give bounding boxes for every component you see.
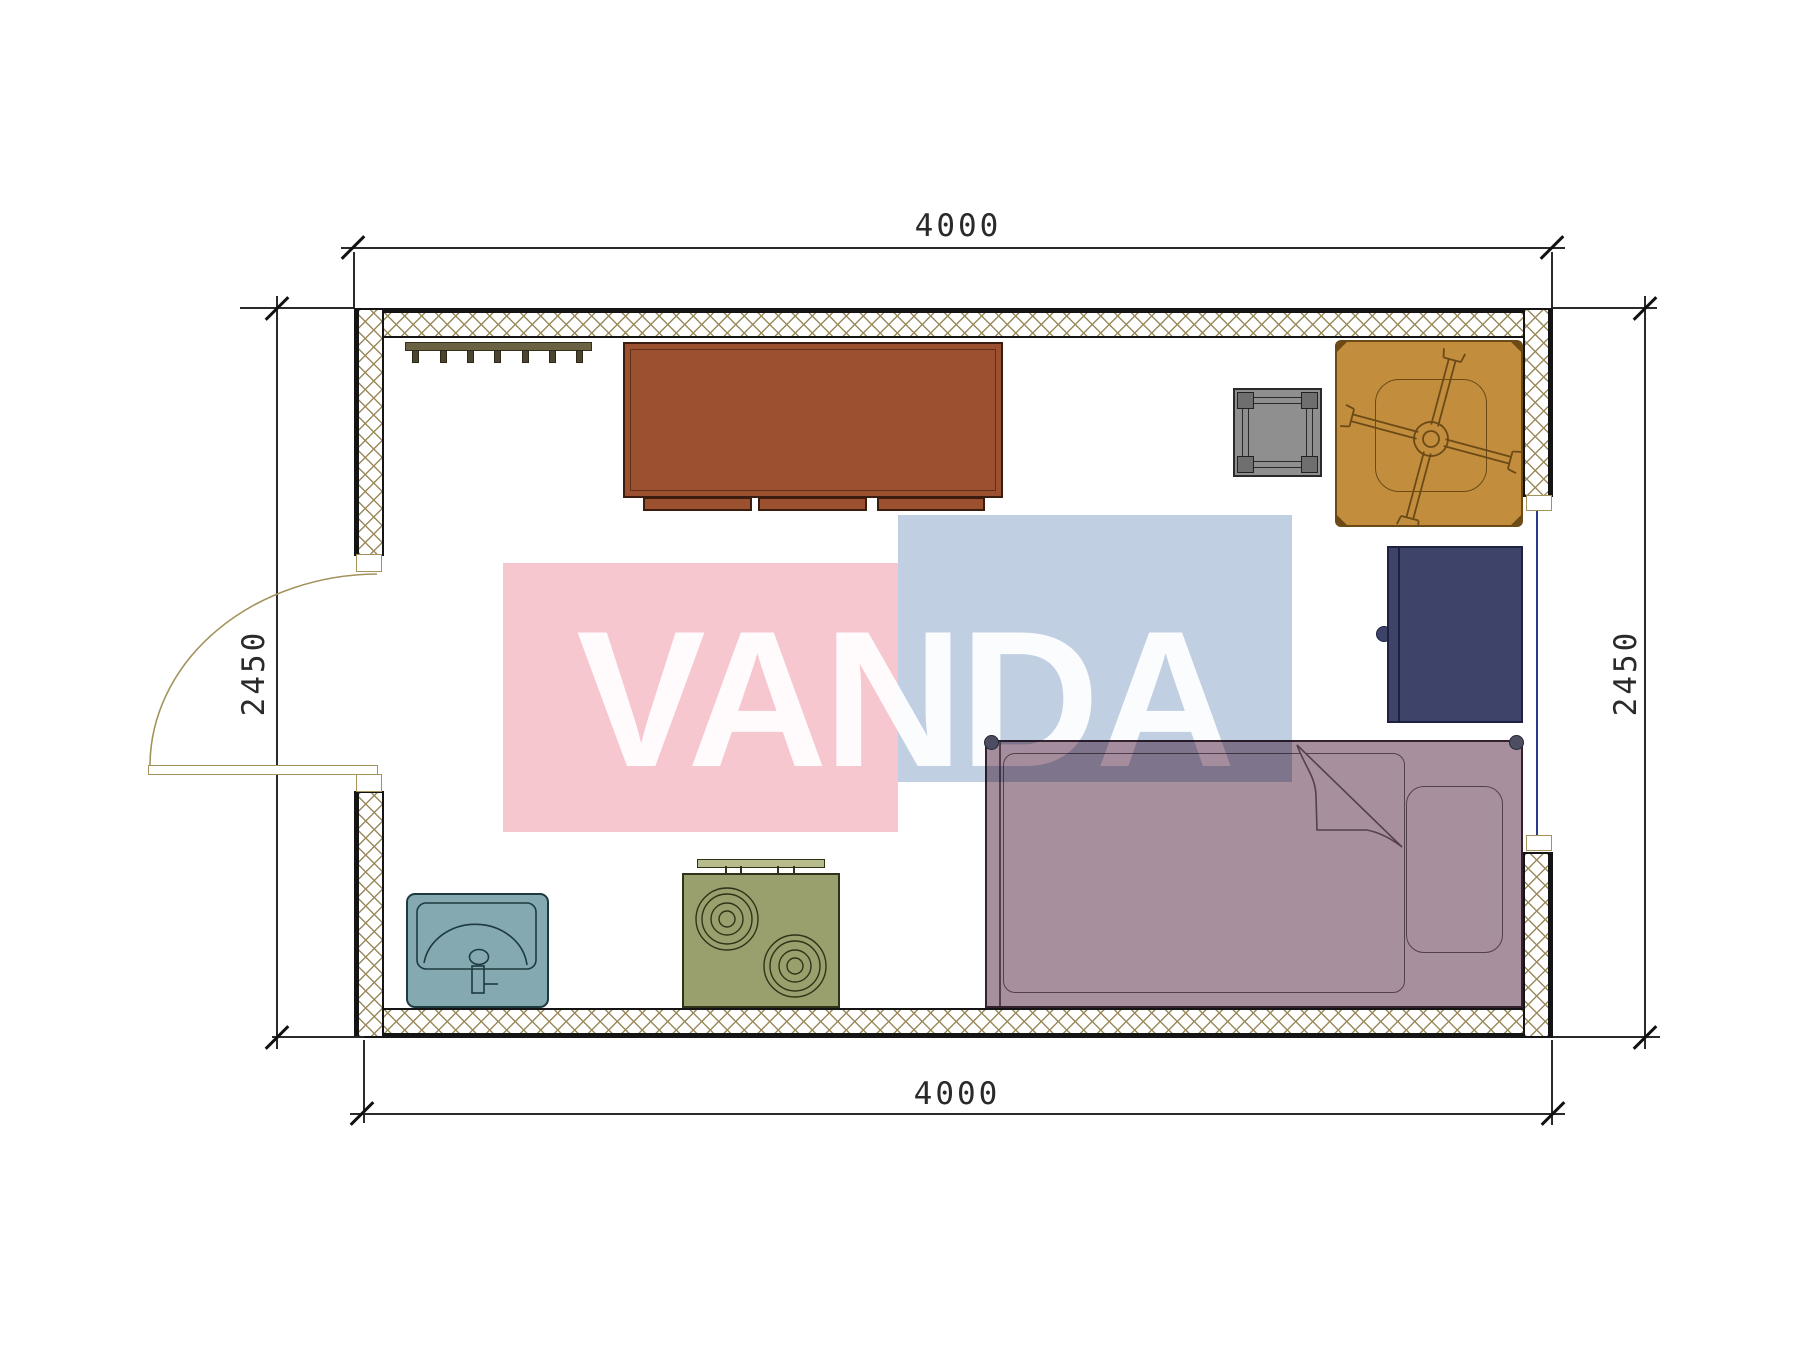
dim-label-right: 2450	[1608, 573, 1644, 773]
desk-drawer-icon	[758, 497, 867, 511]
wall-left-lower	[354, 791, 384, 1038]
wall-top	[354, 308, 1553, 338]
wall-right-upper	[1523, 308, 1553, 497]
cabinet-door-line	[1398, 548, 1400, 721]
floor-plan: VANDA 4000 4000 2450 2450	[0, 0, 1800, 1350]
door-jamb-bottom	[356, 774, 382, 792]
bed-post-icon	[984, 735, 999, 750]
stove-backsplash	[697, 859, 825, 868]
dim-label-left: 2450	[236, 573, 272, 773]
chair-base-cross	[1337, 342, 1523, 527]
dim-line-right	[1644, 296, 1646, 1049]
witness-top-left	[353, 252, 355, 308]
wall-left-upper	[354, 308, 384, 556]
window-glass-line	[1536, 511, 1538, 835]
door-jamb-top	[356, 554, 382, 572]
stool-icon	[1233, 388, 1322, 477]
desk-drawer-icon	[643, 497, 752, 511]
stove-icon	[682, 873, 840, 1008]
witness-left-top	[240, 307, 354, 309]
coat-hook-icon	[412, 350, 419, 363]
cabinet-icon	[1387, 546, 1523, 723]
pillow-icon	[1406, 786, 1503, 953]
witness-left-bottom	[272, 1036, 364, 1038]
wall-right-lower	[1523, 852, 1553, 1038]
dim-label-top: 4000	[858, 208, 1058, 244]
coat-hook-icon	[522, 350, 529, 363]
coat-hook-icon	[549, 350, 556, 363]
coat-hook-icon	[494, 350, 501, 363]
dim-line-bottom	[350, 1113, 1565, 1115]
bed-post-icon	[1509, 735, 1524, 750]
stool-leg	[1237, 456, 1254, 473]
stool-leg	[1301, 392, 1318, 409]
desk-icon	[623, 342, 1003, 498]
stool-leg	[1301, 456, 1318, 473]
witness-top-right	[1551, 252, 1553, 308]
wall-bottom	[354, 1008, 1553, 1038]
dim-label-bottom: 4000	[857, 1076, 1057, 1112]
stove-burners	[684, 875, 838, 1006]
swivel-chair-icon	[1335, 340, 1523, 527]
sink-icon	[406, 893, 549, 1008]
bed-icon	[985, 740, 1523, 1008]
sink-basin	[408, 895, 547, 1006]
stool-leg	[1237, 392, 1254, 409]
dim-line-left	[276, 296, 278, 1049]
coat-hook-icon	[467, 350, 474, 363]
window-jamb-bottom	[1526, 835, 1552, 851]
coat-hook-icon	[440, 350, 447, 363]
desk-drawer-icon	[877, 497, 985, 511]
coat-hook-icon	[576, 350, 583, 363]
dim-line-top	[341, 247, 1565, 249]
window-jamb-top	[1526, 495, 1552, 511]
door-leaf	[148, 765, 378, 775]
stool-frame	[1248, 403, 1307, 462]
